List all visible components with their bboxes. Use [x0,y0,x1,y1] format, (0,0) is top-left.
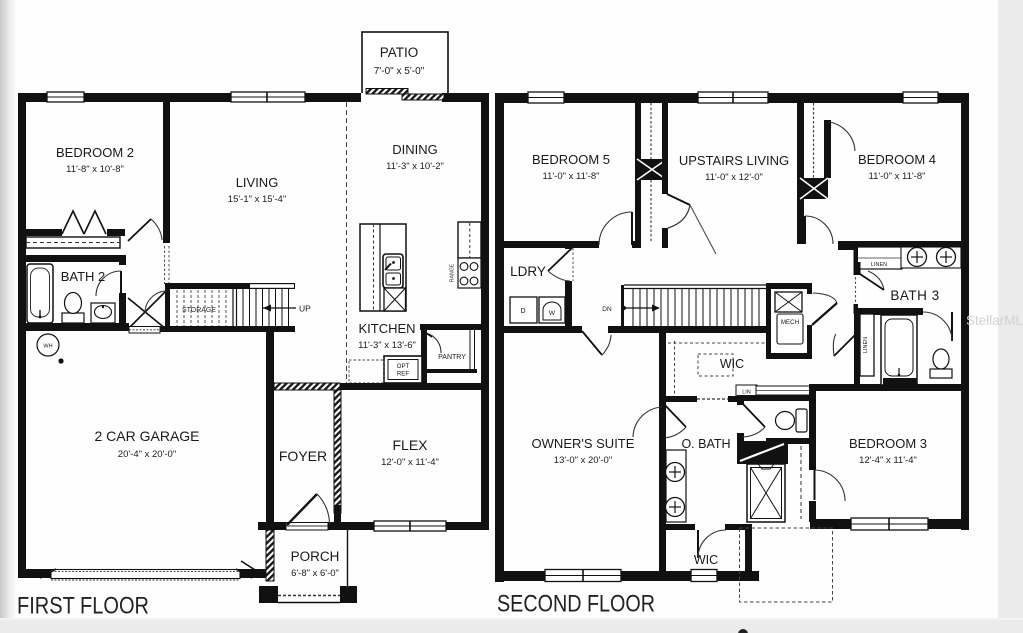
svg-text:W: W [549,310,556,317]
svg-text:WH: WH [43,344,52,350]
svg-text:LIN: LIN [742,390,751,396]
svg-text:PATIO: PATIO [380,45,419,60]
svg-text:SECOND FLOOR: SECOND FLOOR [497,591,655,618]
svg-text:15'-1" x 15'-4": 15'-1" x 15'-4" [228,194,286,205]
svg-text:STORAGE: STORAGE [182,307,216,314]
svg-text:LIVING: LIVING [236,175,279,190]
svg-text:BEDROOM 2: BEDROOM 2 [56,145,134,160]
svg-text:UP: UP [299,304,311,314]
svg-text:BATH 3: BATH 3 [890,288,939,303]
svg-text:11'-3" x 13'-6": 11'-3" x 13'-6" [358,340,416,351]
svg-text:BEDROOM 5: BEDROOM 5 [532,152,610,167]
svg-text:11'-3" x 10'-2": 11'-3" x 10'-2" [386,161,444,172]
svg-text:WIC: WIC [694,553,718,567]
svg-text:11'-0" x 11'-8": 11'-0" x 11'-8" [542,171,599,182]
svg-text:RANGE: RANGE [450,263,456,282]
svg-text:D: D [520,308,525,315]
svg-text:WIC: WIC [720,357,744,371]
svg-text:BEDROOM 3: BEDROOM 3 [849,436,927,451]
svg-text:StellarMLS: StellarMLS [966,313,1023,328]
svg-text:LDRY: LDRY [510,264,546,279]
svg-text:FLEX: FLEX [392,437,428,453]
svg-text:OPT: OPT [397,363,410,370]
svg-text:12'-4" x 11'-4": 12'-4" x 11'-4" [859,455,917,466]
svg-text:UPSTAIRS LIVING: UPSTAIRS LIVING [679,153,789,168]
svg-text:6'-8" x 6'-0": 6'-8" x 6'-0" [291,568,339,579]
svg-text:11'-8" x 10'-8": 11'-8" x 10'-8" [66,164,124,175]
svg-text:20'-4" x 20'-0": 20'-4" x 20'-0" [118,449,176,460]
svg-text:REF: REF [397,371,410,378]
svg-text:KITCHEN: KITCHEN [358,321,415,336]
svg-text:LINEN: LINEN [871,262,887,268]
svg-text:MECH: MECH [781,319,799,326]
svg-text:PORCH: PORCH [291,549,340,564]
svg-text:FOYER: FOYER [279,448,327,464]
svg-text:BEDROOM 4: BEDROOM 4 [858,152,936,167]
svg-text:13'-0" x 20'-0": 13'-0" x 20'-0" [554,455,612,466]
svg-text:2 CAR GARAGE: 2 CAR GARAGE [94,428,199,444]
svg-text:DN: DN [602,306,612,313]
svg-text:12'-0" x 11'-4": 12'-0" x 11'-4" [381,457,439,468]
svg-text:11'-0" x 12'-0": 11'-0" x 12'-0" [705,172,763,183]
svg-text:BATH 2: BATH 2 [61,269,106,284]
svg-text:O. BATH: O. BATH [681,437,730,451]
svg-text:PANTRY: PANTRY [438,354,466,361]
svg-text:DINING: DINING [392,142,438,157]
svg-text:OWNER'S SUITE: OWNER'S SUITE [532,436,635,451]
svg-text:LINEN: LINEN [863,337,869,353]
svg-text:7'-0" x 5'-0": 7'-0" x 5'-0" [374,66,425,77]
svg-text:11'-0" x 11'-8": 11'-0" x 11'-8" [868,171,925,182]
svg-text:FIRST FLOOR: FIRST FLOOR [17,593,149,620]
